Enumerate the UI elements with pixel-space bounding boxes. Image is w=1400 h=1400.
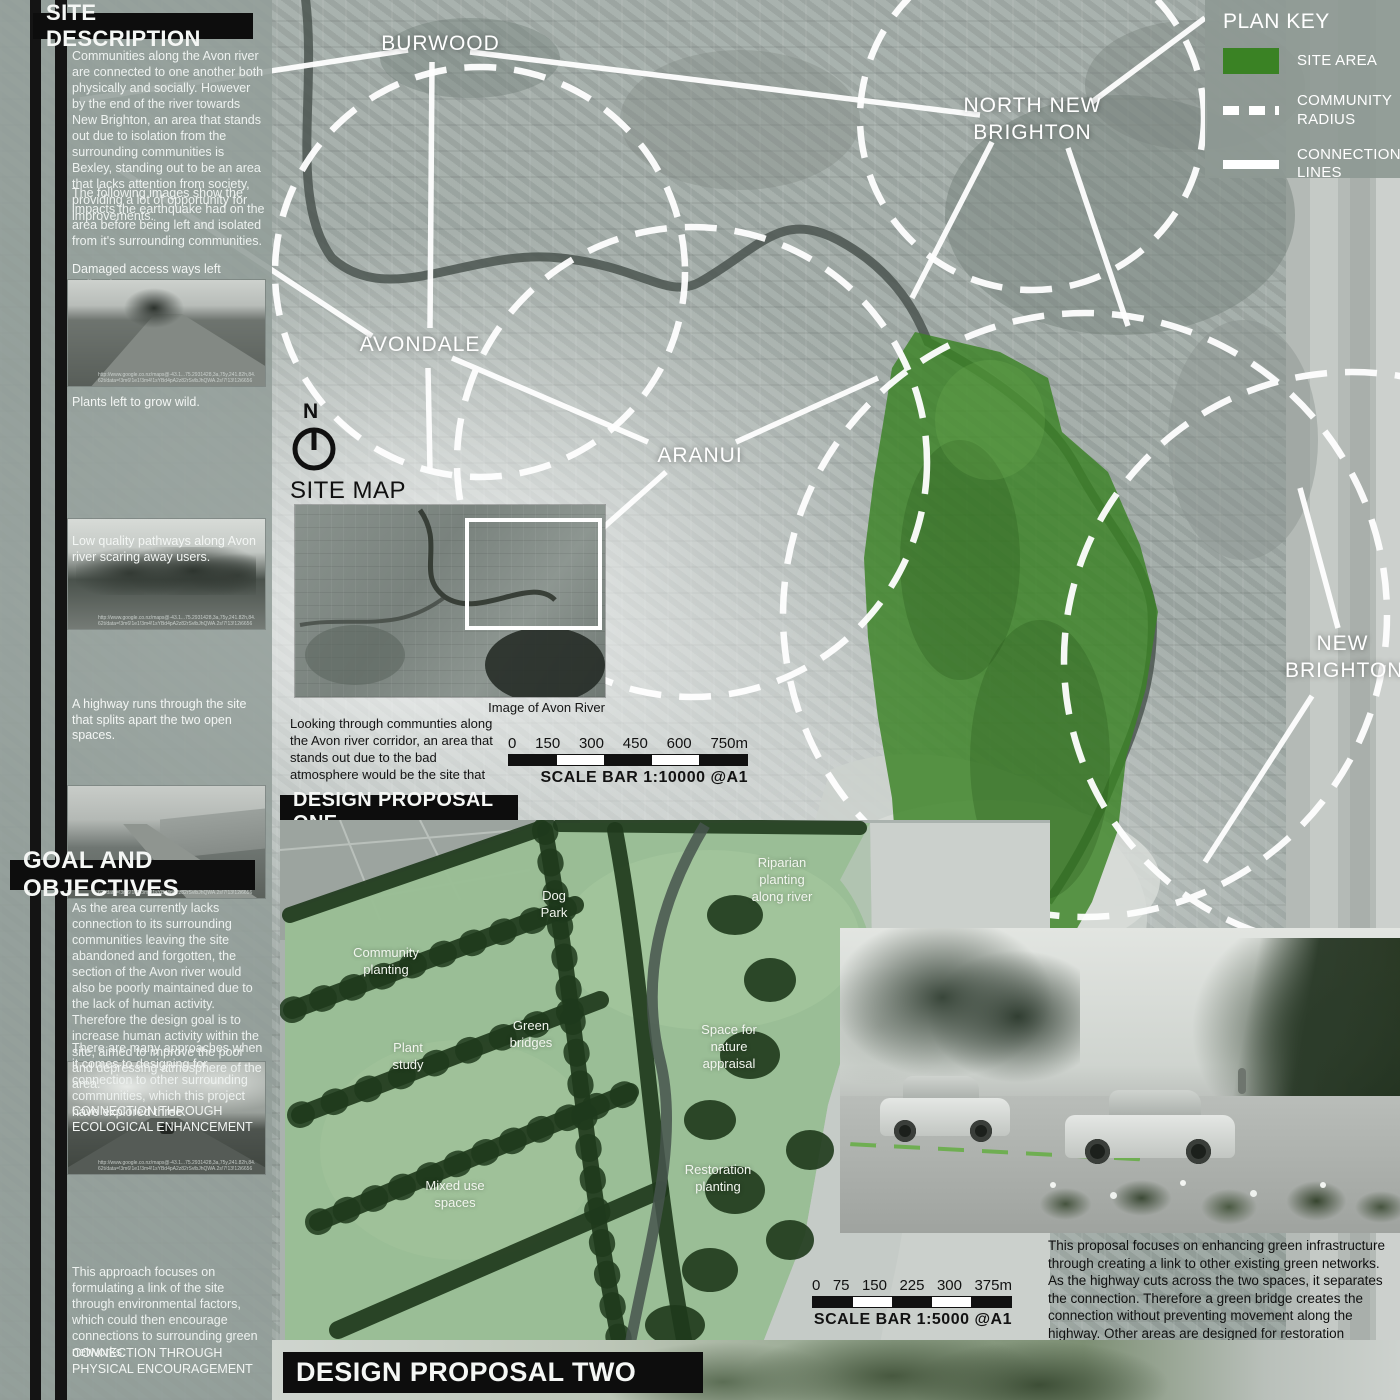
scale-tick: 450 [623,735,648,752]
plan-label-community-planting: Community planting [345,945,427,979]
photo-credit: http://www.google.co.nz/maps@-43.1...75.… [98,615,258,627]
photo-caption-highway: A highway runs through the site that spl… [72,697,265,744]
render-car-right [1065,1090,1235,1164]
sidebar-stripe [30,0,41,1400]
photo-caption-plants-wild: Plants left to grow wild. [72,395,265,411]
scale-bar-label: SCALE BAR 1:5000 @A1 [812,1311,1012,1329]
community-radius-swatch [1223,106,1279,115]
scale-tick: 150 [862,1277,887,1294]
plan-label-nature-appraisal: Space for nature appraisal [694,1022,764,1073]
map-label-north-new-brighton: NORTH NEW BRIGHTON [940,92,1125,147]
tree-silhouette [124,288,184,328]
scale-bar-10000: 0 150 300 450 600 750m SCALE BAR 1:10000… [508,735,748,787]
plan-label-green-bridges: Green bridges [500,1018,562,1052]
plan-label-dog-park: Dog Park [528,888,580,922]
scale-bar-label: SCALE BAR 1:10000 @A1 [508,769,748,787]
photo-caption-low-quality-paths: Low quality pathways along Avon river sc… [72,534,265,565]
scale-tick: 150 [535,735,560,752]
map-label-avondale: AVONDALE [335,331,505,358]
render-car-left [880,1076,1010,1142]
scale-tick: 75 [833,1277,850,1294]
render-flower-bed [1020,1174,1400,1233]
plan-key-item-label: COMMUNITY RADIUS [1297,92,1392,130]
plan-label-mixed-use-spaces: Mixed use spaces [420,1178,490,1212]
site-description-title: SITE DESCRIPTION [46,0,253,52]
compass-icon [290,422,340,474]
map-label-aranui: ARANUI [625,442,775,469]
site-map-paragraph: Looking through communties along the Avo… [290,716,508,784]
photo-damaged-road: http://www.google.co.nz/maps@-43.1...75.… [68,280,265,386]
plan-key-title: PLAN KEY [1223,10,1400,34]
photo-credit: http://www.google.co.nz/maps@-43.1...75.… [98,372,258,384]
site-description-header: SITE DESCRIPTION [33,13,253,39]
site-map-image [295,505,605,697]
design-proposal-two-header: DESIGN PROPOSAL TWO [283,1352,703,1393]
scale-tick: 600 [667,735,692,752]
site-map-focus-rectangle [467,520,600,628]
plan-key-item-label: CONNECTION LINES [1297,146,1392,184]
goal-objectives-header: GOAL AND OBJECTIVES [10,860,255,890]
site-map-art [295,505,605,697]
proposal-one-render [840,928,1400,1233]
photo-credit: http://www.google.co.nz/maps@-43.1...75.… [98,1160,258,1172]
scale-bar-5000: 0 75 150 225 300 375m SCALE BAR 1:5000 @… [812,1277,1012,1329]
site-map-title: SITE MAP [290,477,406,505]
site-area-swatch [1223,48,1279,74]
plan-key-item-label: SITE AREA [1297,52,1377,71]
presentation-board: BURWOOD NORTH NEW BRIGHTON AVONDALE ARAN… [0,0,1400,1400]
plan-key-panel: PLAN KEY SITE AREA COMMUNITY RADIUS CONN… [1205,0,1400,178]
goal-subhead-ecological: CONNECTION THROUGH ECOLOGICAL ENHANCEMEN… [72,1104,265,1135]
scale-tick: 375m [974,1277,1012,1294]
plan-label-riparian-planting: Riparian planting along river [748,855,816,906]
scale-tick: 750m [710,735,748,752]
plan-label-restoration-planting: Restoration planting [680,1162,756,1196]
site-map-caption: Image of Avon River [295,700,605,715]
compass-north-label: N [303,400,318,424]
connection-lines-swatch [1223,160,1279,169]
scale-tick: 0 [508,735,516,752]
scale-tick: 225 [899,1277,924,1294]
render-cyclist [1238,1068,1246,1094]
scale-tick: 300 [579,735,604,752]
map-label-burwood: BURWOOD [358,30,523,57]
scale-tick: 0 [812,1277,820,1294]
design-proposal-two-title: DESIGN PROPOSAL TWO [296,1357,636,1388]
plan-label-plant-study: Plant study [378,1040,438,1074]
map-label-new-brighton: NEW BRIGHTON [1285,630,1400,685]
scale-tick: 300 [937,1277,962,1294]
goal-objectives-title: GOAL AND OBJECTIVES [23,847,255,903]
goal-subhead-physical: CONNECTION THROUGH PHYSICAL ENCOURAGEMEN… [72,1346,265,1377]
sidebar-stripe [55,0,67,1400]
site-description-para2: The following images show the impacts th… [72,185,265,249]
